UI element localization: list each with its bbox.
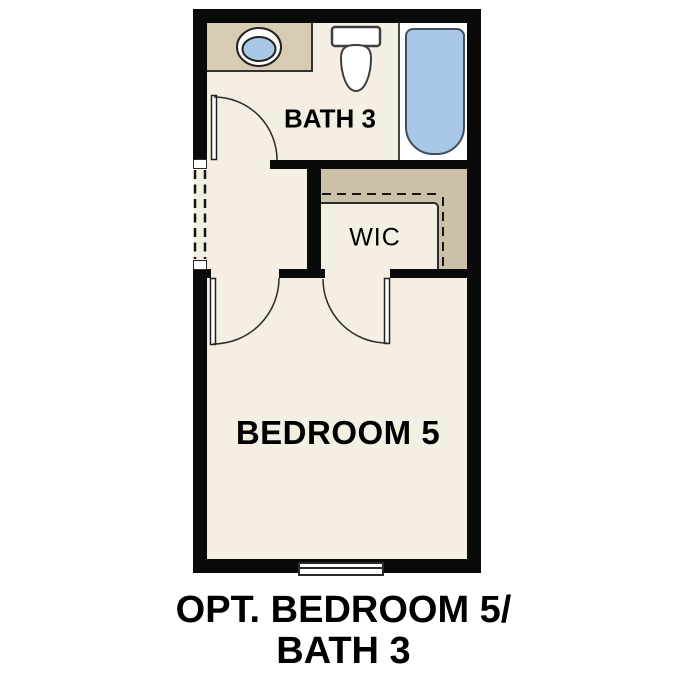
- bath-label: BATH 3: [284, 104, 376, 135]
- wall-left-upper: [193, 9, 207, 162]
- floorplan-figure: BATH 3 WIC BEDROOM 5 OPT. BEDROOM 5/ BAT…: [0, 0, 687, 687]
- bathtub-icon: [405, 28, 465, 155]
- window-icon: [298, 562, 384, 576]
- wall-bedroom-stub-left: [193, 269, 211, 278]
- bedroom-label: BEDROOM 5: [236, 414, 440, 452]
- wall-hall-wic-divider: [307, 169, 321, 278]
- left-wall-opening: [194, 162, 207, 268]
- floor-plan: BATH 3 WIC BEDROOM 5: [0, 0, 687, 687]
- wall-left-lower: [193, 268, 207, 573]
- vanity-counter: [207, 23, 313, 72]
- wic-doorway-floor: [325, 269, 390, 278]
- caption-line2: BATH 3: [0, 631, 687, 672]
- window-pane-line: [300, 567, 382, 569]
- figure-caption: OPT. BEDROOM 5/ BATH 3: [0, 590, 687, 672]
- wall-top: [193, 9, 481, 23]
- wall-bath-bottom: [270, 160, 467, 169]
- opening-jamb-bottom: [193, 260, 207, 270]
- hall-floor: [207, 160, 307, 278]
- caption-line1: OPT. BEDROOM 5/: [0, 590, 687, 631]
- wall-bedroom-stub-mid: [279, 269, 325, 278]
- wall-right: [467, 9, 481, 573]
- wall-bedroom-right: [390, 269, 467, 278]
- opening-jamb-top: [193, 159, 207, 169]
- wic-label: WIC: [349, 224, 401, 253]
